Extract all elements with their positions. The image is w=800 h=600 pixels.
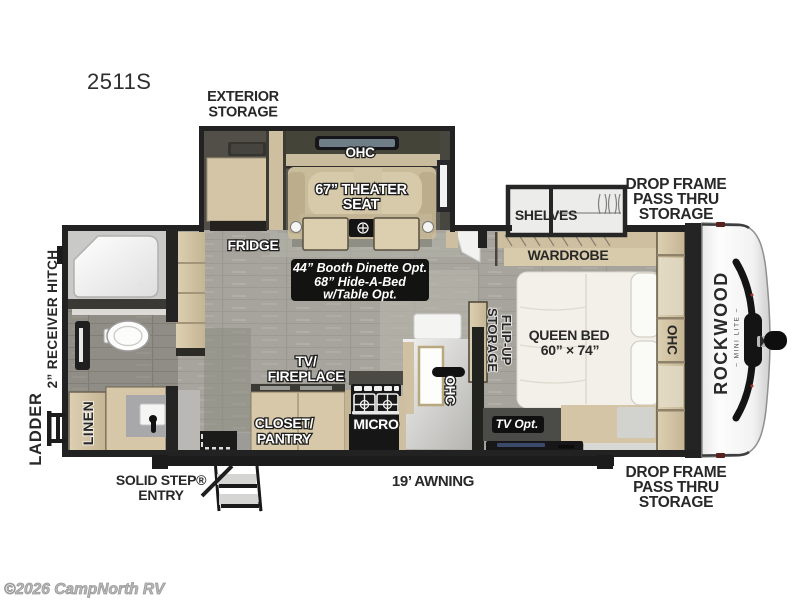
svg-text:©2026 CampNorth RV: ©2026 CampNorth RV xyxy=(4,581,166,598)
svg-text:STORAGE: STORAGE xyxy=(639,494,713,511)
svg-text:ENTRY: ENTRY xyxy=(138,487,184,503)
svg-text:SOLID STEP®: SOLID STEP® xyxy=(116,472,207,488)
svg-text:– MINI LITE –: – MINI LITE – xyxy=(734,307,741,367)
svg-text:w/Table Opt.: w/Table Opt. xyxy=(323,288,397,302)
svg-text:SHELVES: SHELVES xyxy=(515,207,577,223)
svg-text:ROCKWOOD: ROCKWOOD xyxy=(711,271,731,395)
svg-text:MICRO: MICRO xyxy=(353,416,399,432)
svg-text:67” THEATER: 67” THEATER xyxy=(315,182,407,198)
svg-text:60” × 74”: 60” × 74” xyxy=(541,342,599,358)
svg-text:SEAT: SEAT xyxy=(343,197,380,213)
svg-text:QUEEN BED: QUEEN BED xyxy=(529,327,610,343)
svg-text:LADDER: LADDER xyxy=(27,392,45,466)
svg-text:FLIP-UP: FLIP-UP xyxy=(499,315,514,366)
svg-text:LINEN: LINEN xyxy=(80,401,96,446)
svg-text:EXTERIOR: EXTERIOR xyxy=(207,89,280,105)
svg-text:OHC: OHC xyxy=(345,145,375,160)
svg-text:FRIDGE: FRIDGE xyxy=(227,237,278,253)
svg-text:STORAGE: STORAGE xyxy=(208,105,278,121)
svg-text:CLOSET/: CLOSET/ xyxy=(255,415,314,431)
svg-text:STORAGE: STORAGE xyxy=(639,206,713,223)
svg-text:WARDROBE: WARDROBE xyxy=(528,247,609,263)
svg-text:TV/: TV/ xyxy=(296,353,317,369)
svg-text:OHC: OHC xyxy=(443,375,458,405)
svg-text:OHC: OHC xyxy=(665,325,680,355)
svg-text:19’ AWNING: 19’ AWNING xyxy=(392,473,474,490)
svg-text:STORAGE: STORAGE xyxy=(485,308,500,372)
svg-text:PANTRY: PANTRY xyxy=(257,431,312,447)
svg-text:FIREPLACE: FIREPLACE xyxy=(268,368,345,384)
svg-text:44” Booth Dinette Opt.: 44” Booth Dinette Opt. xyxy=(292,261,427,275)
svg-text:TV Opt.: TV Opt. xyxy=(496,417,539,431)
svg-text:2” RECEIVER HITCH: 2” RECEIVER HITCH xyxy=(45,250,60,389)
svg-text:2511S: 2511S xyxy=(87,69,151,94)
